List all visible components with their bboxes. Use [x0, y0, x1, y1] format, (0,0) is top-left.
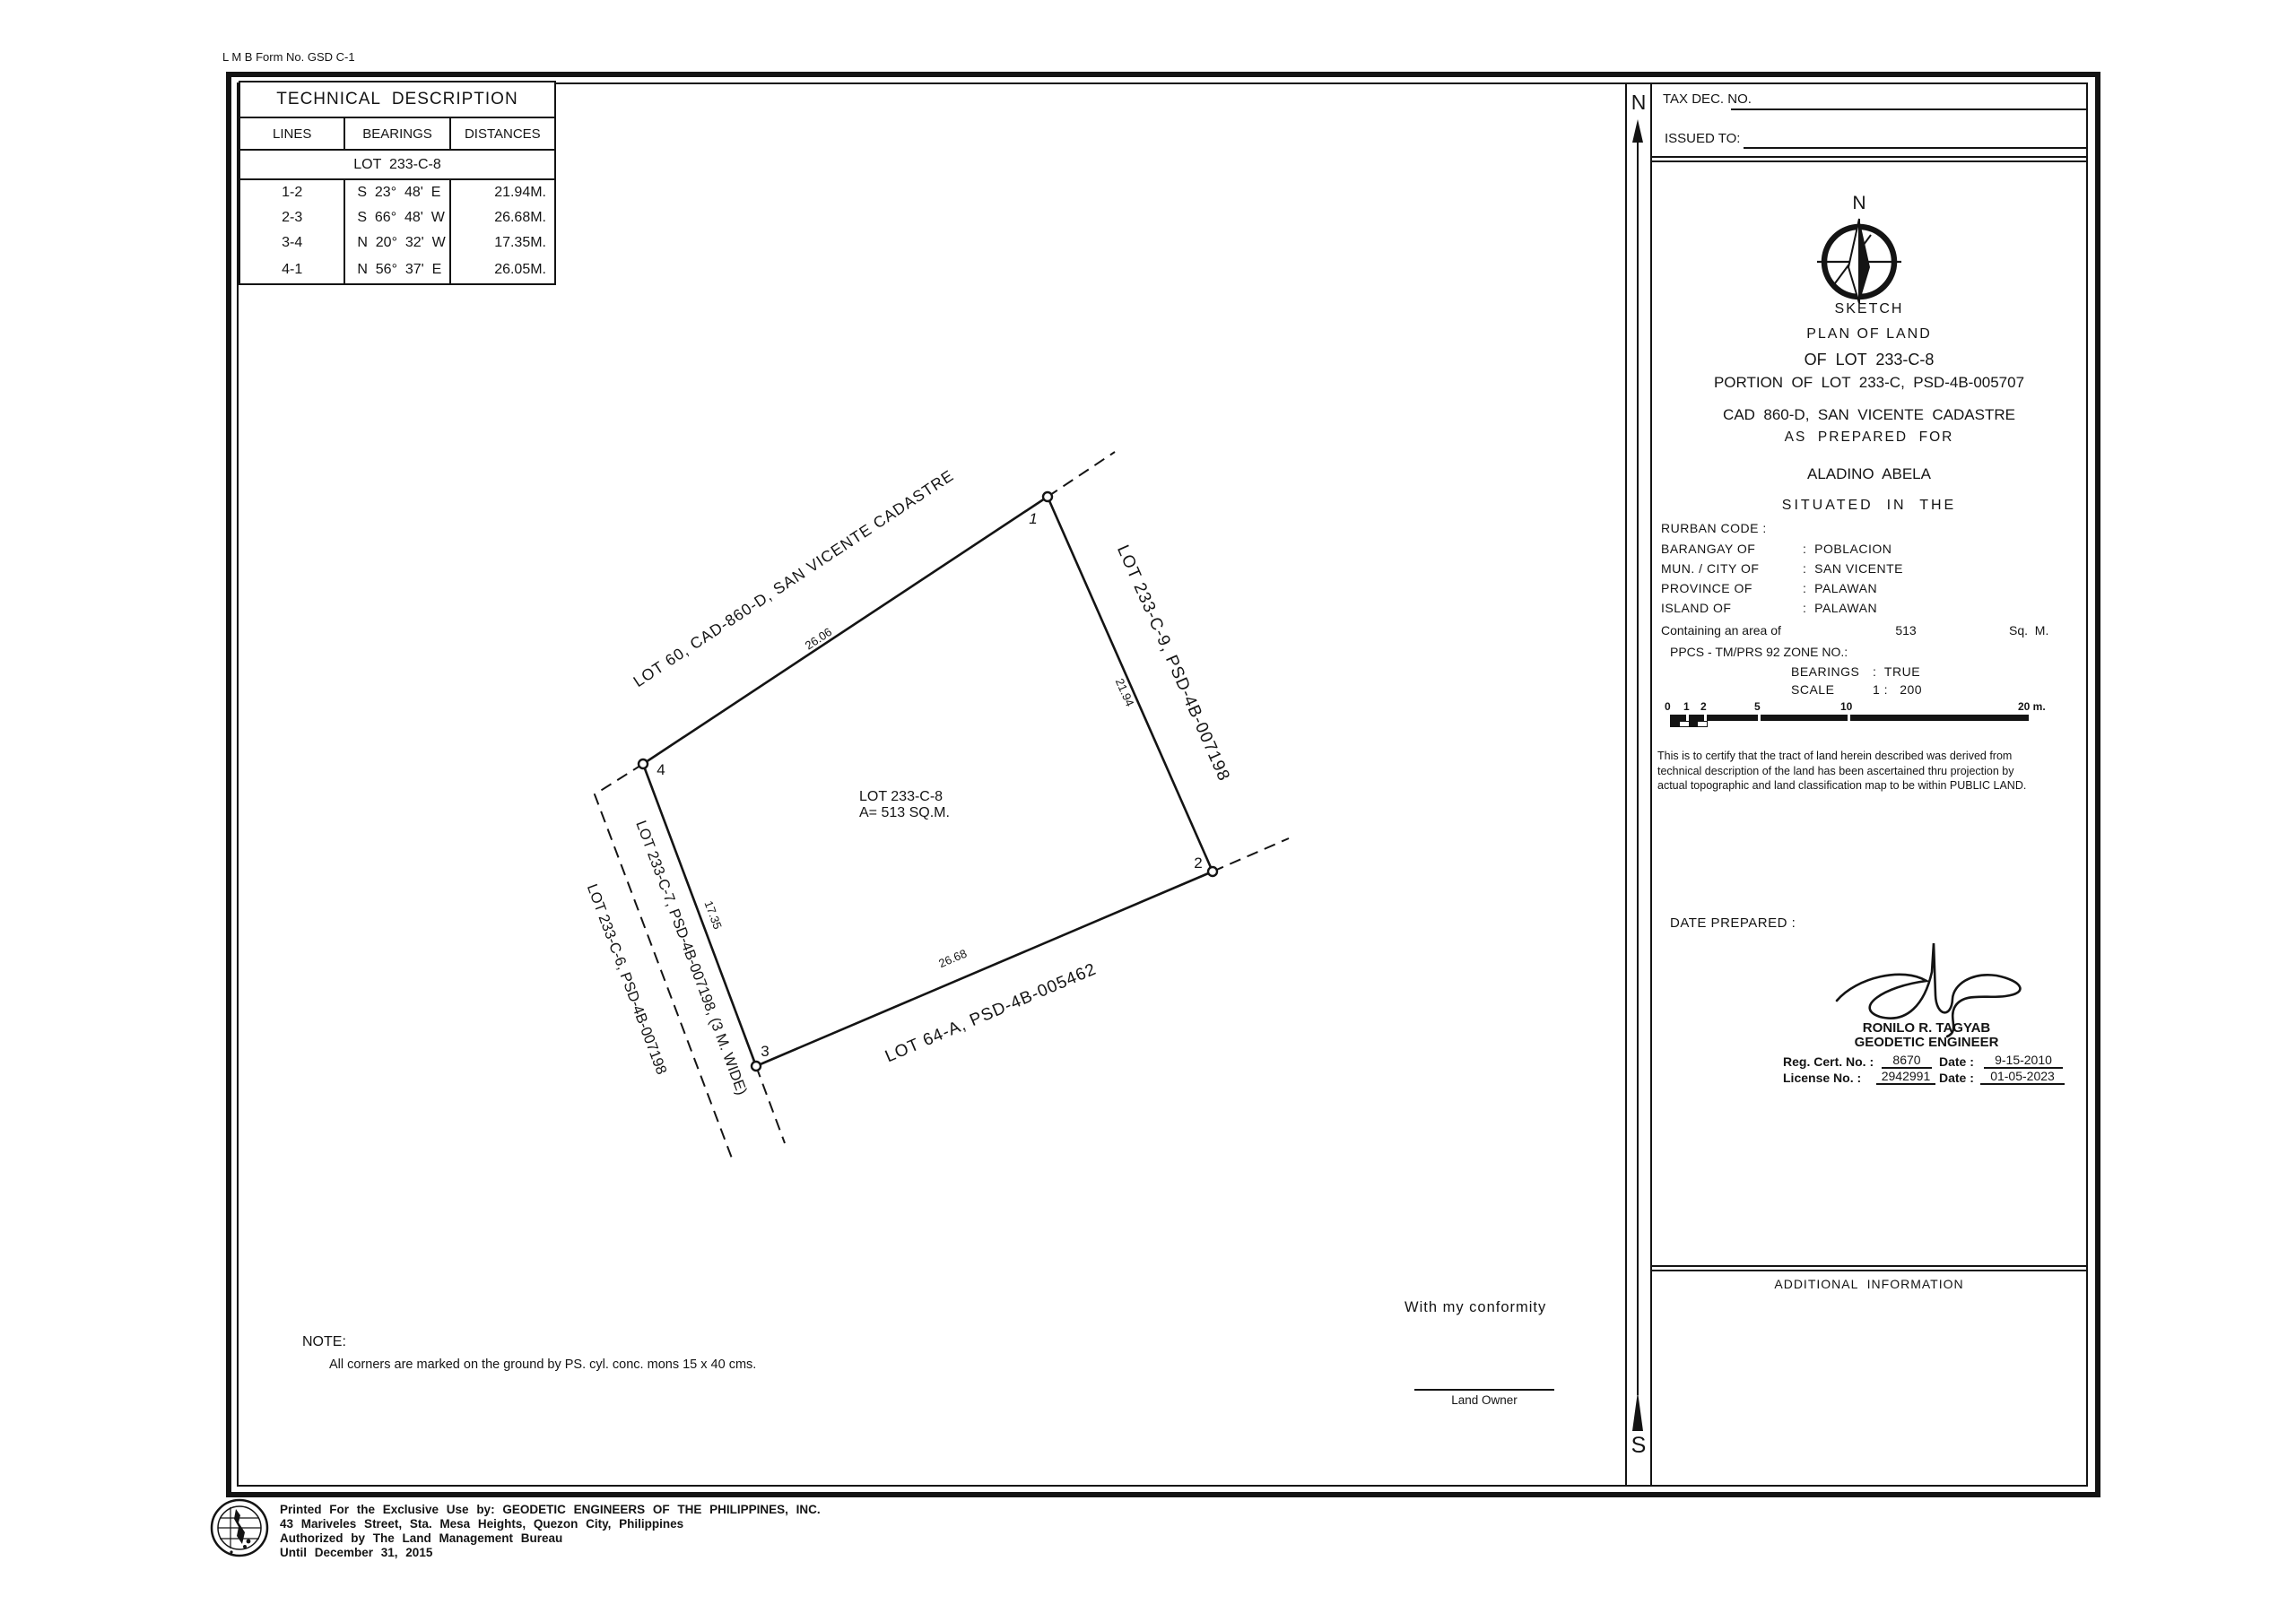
corner-3-label: 3	[761, 1043, 769, 1060]
footer-credits: Printed For the Exclusive Use by: GEODET…	[280, 1503, 821, 1560]
compass-north-label: N	[1841, 193, 1877, 214]
title-cadastre: CAD 860-D, SAN VICENTE CADASTRE	[1652, 406, 2086, 424]
note-body: All corners are marked on the ground by …	[329, 1357, 756, 1372]
reg-cert-label: Reg. Cert. No. :	[1783, 1054, 1874, 1069]
scale-bar-tick-1: 1	[1683, 700, 1690, 713]
lot-name-label: LOT 233-C-8	[859, 789, 943, 804]
scale-bar	[1670, 715, 2029, 721]
panel-separator-top-2	[1652, 160, 2086, 162]
barangay-value: : POBLACION	[1803, 542, 1892, 556]
corner-2-label: 2	[1194, 854, 1202, 872]
scale-bar-tick-20: 20 m.	[2018, 700, 2046, 713]
title-sketch: SKETCH	[1652, 301, 2086, 317]
island-label: ISLAND OF	[1661, 601, 1731, 615]
reg-cert-value: 8670	[1882, 1053, 1932, 1069]
certification-text: This is to certify that the tract of lan…	[1657, 749, 2038, 794]
ppcs-zone-label: PPCS - TM/PRS 92 ZONE NO.:	[1670, 645, 1848, 659]
province-value: : PALAWAN	[1803, 581, 1877, 595]
footer-line-3: Authorized by The Land Management Bureau	[280, 1531, 821, 1546]
title-plan-of-land: PLAN OF LAND	[1652, 326, 2086, 343]
additional-information-heading: ADDITIONAL INFORMATION	[1652, 1277, 2086, 1291]
gep-seal-icon	[209, 1491, 270, 1566]
island-value: : PALAWAN	[1803, 601, 1877, 615]
title-portion-of-lot: PORTION OF LOT 233-C, PSD-4B-005707	[1652, 374, 2086, 392]
area-unit: Sq. M.	[2009, 623, 2048, 638]
scale-bar-tick-0: 0	[1665, 700, 1671, 713]
dimension-2-3: 26.68	[936, 947, 969, 971]
dimension-3-4: 17.35	[701, 899, 724, 932]
scale-bar-tick-10: 10	[1840, 700, 1852, 713]
scale-bar-tick-2: 2	[1700, 700, 1707, 713]
area-label: Containing an area of	[1661, 623, 1781, 638]
province-label: PROVINCE OF	[1661, 581, 1752, 595]
rurban-code-label: RURBAN CODE :	[1661, 521, 1767, 535]
reg-date-label: Date :	[1939, 1054, 1974, 1069]
license-value: 2942991	[1876, 1069, 1935, 1085]
bearings-value: : TRUE	[1873, 664, 1920, 679]
reg-date-value: 9-15-2010	[1984, 1053, 2063, 1069]
tax-dec-blank-line	[1731, 92, 2086, 110]
adjacent-lot-top-label: LOT 60, CAD-860-D, SAN VICENTE CADASTRE	[630, 466, 957, 690]
issued-to-blank-line	[1744, 132, 2086, 149]
corner-4-label: 4	[657, 761, 665, 778]
title-as-prepared-for: AS PREPARED FOR	[1652, 429, 2086, 446]
adjacent-lot-right-label: LOT 233-C-9, PSD-4B-007198	[1113, 542, 1233, 785]
bearings-label: BEARINGS	[1791, 664, 1859, 679]
area-value: 513	[1874, 623, 1937, 638]
license-label: License No. :	[1783, 1071, 1861, 1085]
sketch-plan-document: L M B Form No. GSD C-1 N S TECHNICAL DES…	[0, 0, 2296, 1622]
adjacent-lot-left-label: LOT 233-C-6, PSD-4B-007198	[584, 882, 670, 1077]
lot-sketch-canvas: 1 2 3 4 26.06 21.94 26.68 17.35 LOT 60, …	[0, 0, 2296, 1622]
barangay-label: BARANGAY OF	[1661, 542, 1755, 556]
license-date-value: 01-05-2023	[1980, 1069, 2065, 1085]
scale-value: 1 : 200	[1873, 682, 1922, 697]
footer-line-2: 43 Mariveles Street, Sta. Mesa Heights, …	[280, 1517, 821, 1531]
license-date-label: Date :	[1939, 1071, 1974, 1085]
land-owner-signature-line	[1414, 1389, 1554, 1391]
scale-bar-tick-5: 5	[1754, 700, 1761, 713]
panel-separator-top-1	[1652, 156, 2086, 158]
engineer-name: RONILO R. TAGYAB	[1819, 1020, 2034, 1036]
municipality-label: MUN. / CITY OF	[1661, 561, 1759, 576]
adjacent-lot-bottom-label: LOT 64-A, PSD-4B-005462	[883, 960, 1100, 1067]
conformity-text: With my conformity	[1405, 1299, 1546, 1316]
date-prepared-label: DATE PREPARED :	[1670, 915, 1796, 931]
municipality-value: : SAN VICENTE	[1803, 561, 1903, 576]
scale-label: SCALE	[1791, 682, 1834, 697]
note-heading: NOTE:	[302, 1334, 346, 1350]
lot-area-label: A= 513 SQ.M.	[859, 805, 950, 820]
title-situated-in-the: SITUATED IN THE	[1652, 498, 2086, 514]
footer-line-1: Printed For the Exclusive Use by: GEODET…	[280, 1503, 821, 1517]
title-of-lot: OF LOT 233-C-8	[1652, 351, 2086, 369]
engineer-title: GEODETIC ENGINEER	[1819, 1035, 2034, 1050]
scale-bar-subdivision	[1670, 721, 1708, 727]
panel-separator-bottom-2	[1652, 1270, 2086, 1271]
footer-line-4: Until December 31, 2015	[280, 1546, 821, 1560]
corner-1-label: 1	[1029, 510, 1037, 527]
land-owner-label: Land Owner	[1414, 1393, 1554, 1407]
compass-rose-icon	[1805, 215, 1913, 314]
issued-to-label: ISSUED TO:	[1665, 131, 1740, 146]
title-claimant-name: ALADINO ABELA	[1652, 465, 2086, 483]
panel-separator-bottom-1	[1652, 1265, 2086, 1267]
